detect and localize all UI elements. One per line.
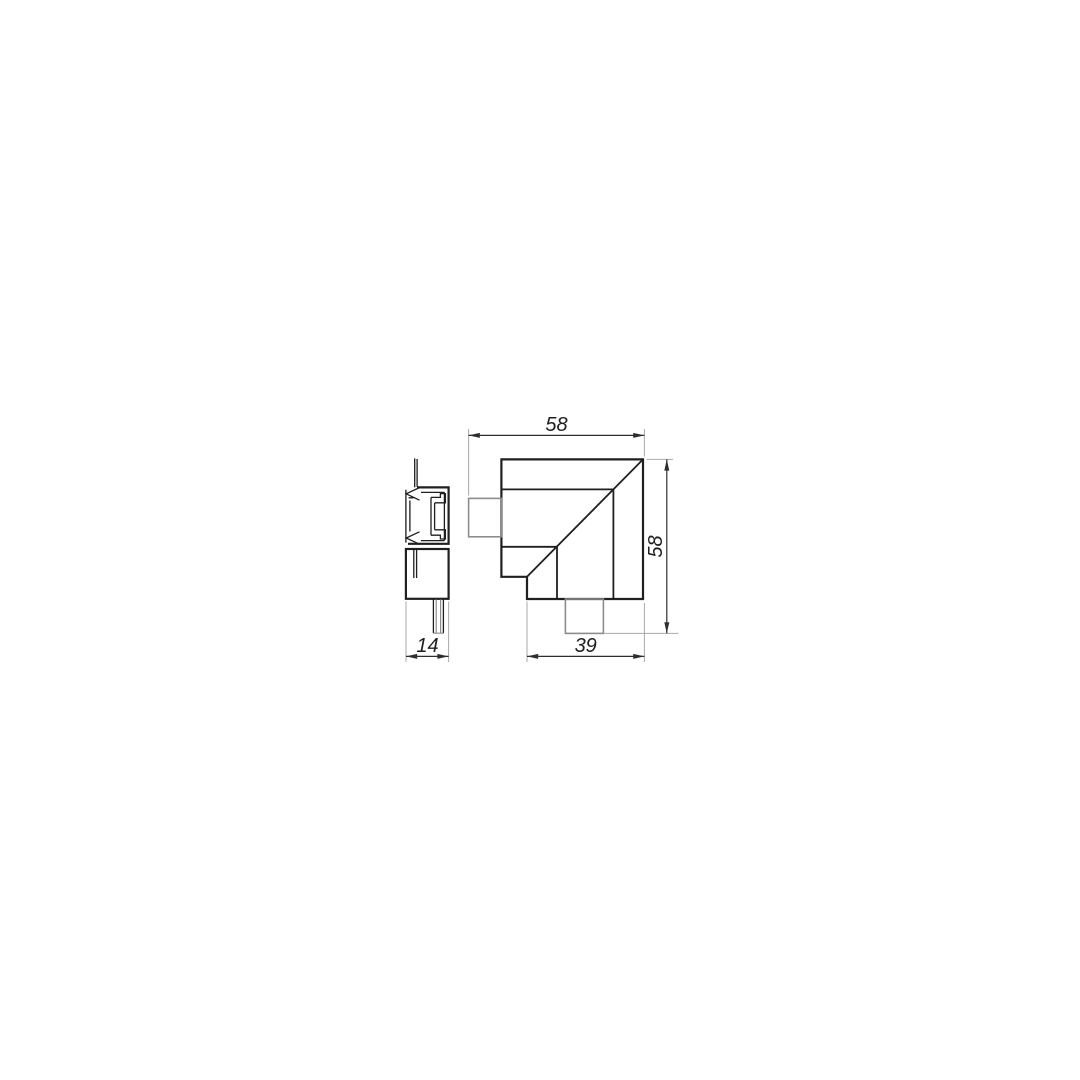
dimension-side-width: 14 — [406, 602, 449, 663]
front-view-left-tab — [469, 498, 502, 536]
side-view-lower-box — [406, 549, 449, 599]
dimension-right-height-label: 58 — [645, 535, 667, 557]
side-view-lower-rib — [414, 550, 417, 579]
front-view — [469, 459, 643, 633]
side-view-flange — [415, 458, 417, 487]
side-view-bottom-tab — [433, 599, 443, 633]
dimension-bottom-width-label: 39 — [575, 635, 597, 657]
side-view-channel-outline — [408, 487, 449, 543]
side-view-top-clip — [406, 488, 419, 501]
front-view-diagonal — [527, 459, 643, 576]
dimension-bottom-width-arrow-right — [633, 654, 644, 659]
dimension-bottom-width-arrow-left — [527, 654, 538, 659]
dimension-top-width-label: 58 — [545, 414, 567, 436]
side-view-snap-plate — [431, 494, 445, 539]
side-view-bottom-tab-inner — [433, 600, 443, 634]
side-view-bottom-clip — [406, 532, 419, 544]
dimension-side-width-label: 14 — [416, 635, 438, 657]
dimension-right-height-arrow-bottom — [664, 622, 669, 633]
drawing-canvas: 58 58 39 14 — [0, 0, 1080, 1080]
side-view-channel-inner — [421, 492, 444, 540]
technical-drawing: 58 58 39 14 — [0, 0, 1080, 1080]
side-view — [406, 458, 449, 633]
dimension-top-width-arrow-left — [469, 433, 480, 438]
dimension-right-height-arrow-top — [664, 459, 669, 470]
dimension-top-width-arrow-right — [633, 433, 644, 438]
dimension-bottom-width: 39 — [527, 602, 644, 663]
dimension-top-width: 58 — [469, 414, 645, 496]
front-view-bottom-tab — [565, 599, 603, 633]
dimension-right-height: 58 — [604, 459, 679, 633]
dimension-side-width-arrow-right — [437, 654, 448, 659]
